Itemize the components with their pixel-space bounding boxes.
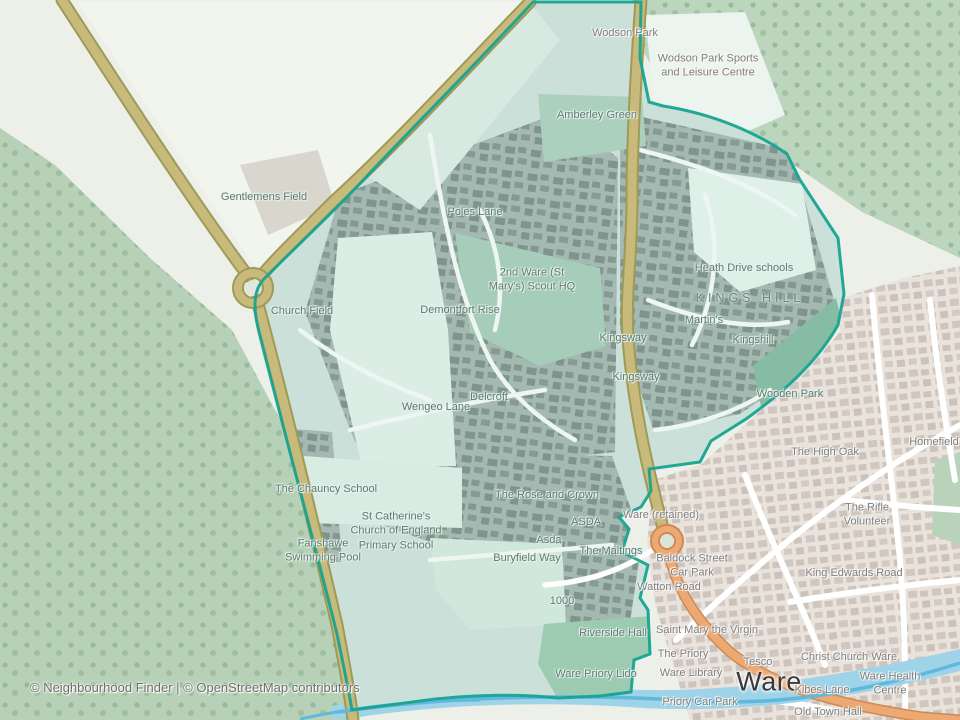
- map-label: Poles Lane: [447, 205, 502, 219]
- map-label: Christ Church Ware: [801, 650, 897, 664]
- map-label: Kibes Lane: [794, 683, 849, 697]
- map-label: Ware Priory Lido: [555, 667, 637, 681]
- attribution-text: © Neighbourhood Finder | © OpenStreetMap…: [30, 680, 360, 695]
- map-label: Delcroft: [470, 390, 508, 404]
- map-label: Ware Health Centre: [855, 670, 925, 699]
- map-label: Wooden Park: [757, 387, 823, 401]
- map-label: Wodson Park Sports and Leisure Centre: [658, 52, 759, 81]
- map-label: Homefield: [909, 435, 959, 449]
- map-label: Demontfort Rise: [420, 303, 499, 317]
- map-label: KINGS HILL: [696, 290, 805, 306]
- map-label: Priory Car Park: [662, 695, 737, 709]
- map-label: Church Field: [271, 304, 333, 318]
- map-label: Gentlemens Field: [221, 190, 307, 204]
- map-label: Ware (retained): [623, 508, 699, 522]
- map-label: The Rose and Crown: [495, 488, 599, 502]
- map-label: Kingsway: [612, 370, 659, 384]
- map-label: Watton Road: [637, 580, 701, 594]
- map-label: 2nd Ware (St Mary's) Scout HQ: [489, 266, 575, 295]
- map-labels-layer: Wodson ParkWodson Park Sports and Leisur…: [0, 0, 960, 720]
- map-label: Fanshawe Swimming Pool: [285, 537, 361, 566]
- map-label: Kingsway: [599, 331, 646, 345]
- map-label: The High Oak: [791, 445, 859, 459]
- map-label: St Catherine's Church of England Primary…: [350, 510, 441, 553]
- map-attribution: © Neighbourhood Finder | © OpenStreetMap…: [30, 680, 360, 695]
- map-label: The Rifle Volunteer: [821, 501, 914, 530]
- map-label: Old Town Hall: [794, 705, 862, 719]
- map-label: Wodson Park: [592, 26, 658, 40]
- map-label: Buryfield Way: [493, 551, 560, 565]
- map-label: The Chauncy School: [275, 482, 377, 496]
- map-label: Martin's: [685, 313, 723, 327]
- map-label: Heath Drive schools: [695, 261, 793, 275]
- map-label: The Priory: [658, 647, 709, 661]
- map-label: Asda: [536, 533, 561, 547]
- map-label: 1000: [550, 594, 574, 608]
- map-label: Wengeo Lane: [402, 400, 470, 414]
- map-label: Riverside Hall: [579, 626, 647, 640]
- map-label: The Maltings: [580, 544, 643, 558]
- map-label: Amberley Green: [557, 108, 637, 122]
- map-label: Ware Library: [660, 666, 723, 680]
- town-label: Ware: [736, 664, 802, 699]
- map-label: King Edwards Road: [805, 566, 902, 580]
- map-label: Saint Mary the Virgin: [656, 623, 758, 637]
- map-label: Tesco: [744, 655, 773, 669]
- map-label: Baldock Street Car Park: [656, 552, 728, 581]
- map-viewport[interactable]: Wodson ParkWodson Park Sports and Leisur…: [0, 0, 960, 720]
- map-label: ASDA: [571, 515, 601, 529]
- map-label: Kingshill: [733, 333, 774, 347]
